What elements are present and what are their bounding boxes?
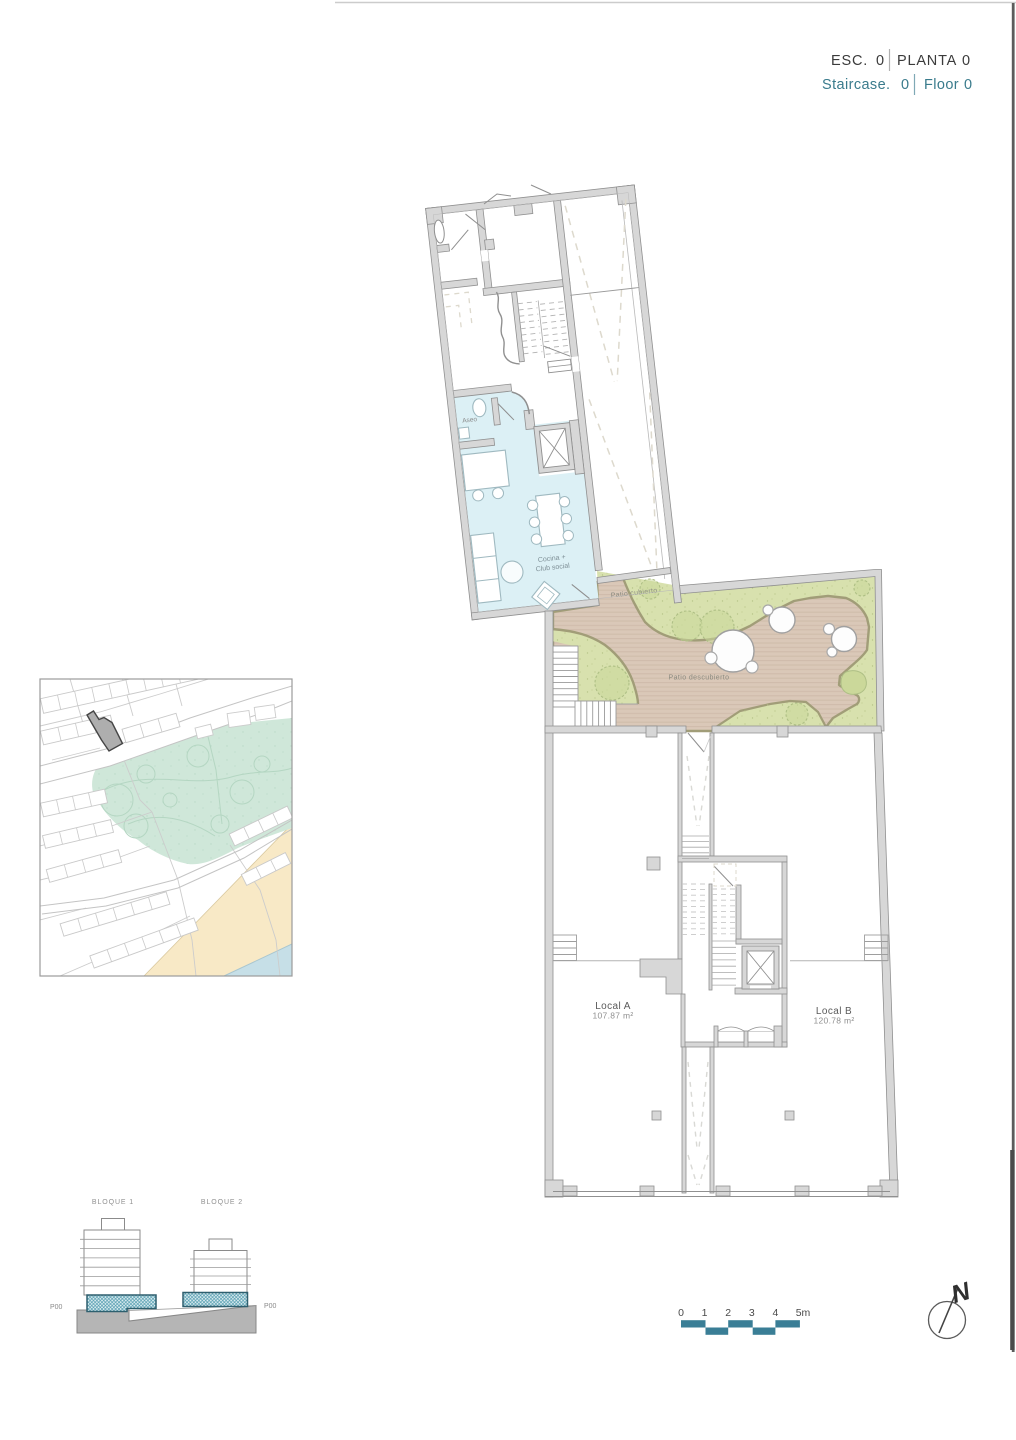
svg-text:0: 0 — [962, 53, 971, 69]
svg-text:0: 0 — [678, 1307, 684, 1319]
svg-text:2: 2 — [725, 1307, 731, 1319]
svg-text:107.87 m²: 107.87 m² — [593, 1011, 634, 1021]
svg-text:5m: 5m — [796, 1307, 811, 1319]
svg-text:ESC.: ESC. — [831, 53, 868, 69]
svg-text:BLOQUE 1: BLOQUE 1 — [92, 1199, 134, 1206]
svg-text:BLOQUE 2: BLOQUE 2 — [201, 1199, 243, 1206]
svg-text:1: 1 — [702, 1307, 708, 1319]
svg-text:3: 3 — [749, 1307, 755, 1319]
svg-text:Patio descubierto: Patio descubierto — [669, 675, 730, 682]
svg-text:0: 0 — [876, 53, 885, 69]
svg-text:Staircase.: Staircase. — [822, 77, 890, 93]
svg-text:120.78 m²: 120.78 m² — [814, 1016, 855, 1026]
svg-text:P00: P00 — [264, 1303, 277, 1310]
svg-text:0: 0 — [901, 77, 909, 93]
svg-text:0: 0 — [964, 77, 972, 93]
svg-text:Floor: Floor — [924, 77, 959, 93]
svg-text:P00: P00 — [50, 1304, 63, 1311]
svg-text:PLANTA: PLANTA — [897, 53, 957, 69]
svg-text:4: 4 — [772, 1307, 778, 1319]
